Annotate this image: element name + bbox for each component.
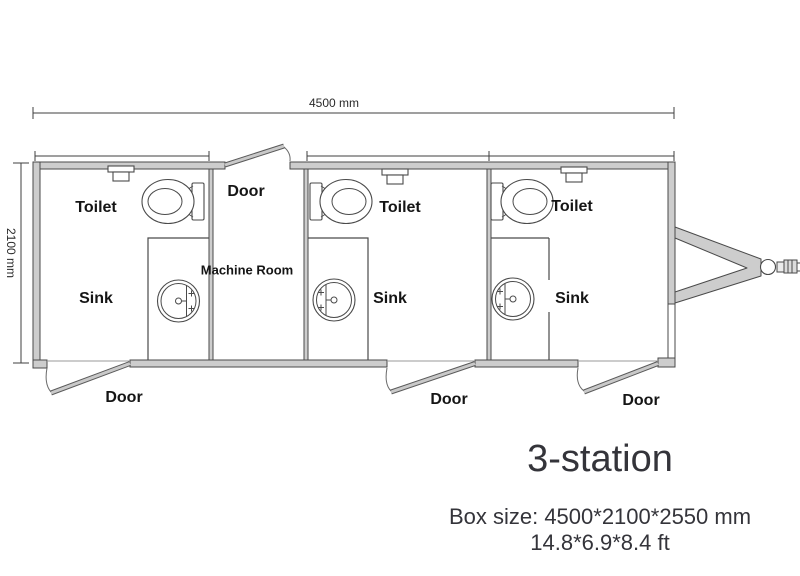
sink-icon xyxy=(313,279,355,321)
bottom-door-label-1: Door xyxy=(105,390,142,406)
floor-plan-page: 4500 mm 2100 mm Toilet Toilet Toilet Sin… xyxy=(0,0,800,576)
height-dimension-label: 2100 mm xyxy=(5,228,17,278)
vent-icon xyxy=(382,169,408,184)
width-dimension-label: 4500 mm xyxy=(309,97,359,109)
sink-label-3: Sink xyxy=(555,291,589,307)
machine-room-label: Machine Room xyxy=(201,264,293,277)
top-door-label: Door xyxy=(227,184,264,200)
box-size-mm: Box size: 4500*2100*2550 mm xyxy=(449,506,751,528)
sink-icon xyxy=(158,280,200,322)
bottom-door-label-3: Door xyxy=(622,393,659,409)
trailer-hitch-icon xyxy=(675,227,800,303)
fixtures xyxy=(108,166,587,322)
bottom-door-label-2: Door xyxy=(430,392,467,408)
vent-icon xyxy=(561,167,587,182)
dimension-lines xyxy=(13,107,674,363)
toilet-icon xyxy=(491,180,553,224)
toilet-label-1: Toilet xyxy=(75,200,116,216)
product-title: 3-station xyxy=(527,440,673,478)
toilet-label-2: Toilet xyxy=(379,200,420,216)
toilet-label-3: Toilet xyxy=(551,199,592,215)
sink-label-1: Sink xyxy=(79,291,113,307)
bottom-door-2 xyxy=(386,361,475,392)
top-door xyxy=(225,146,290,165)
box-size-ft: 14.8*6.9*8.4 ft xyxy=(530,532,669,554)
floor-plan-drawing xyxy=(0,0,800,576)
toilet-icon xyxy=(142,180,204,224)
sink-label-2: Sink xyxy=(373,291,407,307)
sink-icon xyxy=(492,278,534,320)
vent-icon xyxy=(108,166,134,181)
bottom-door-3 xyxy=(577,361,658,392)
toilet-icon xyxy=(310,180,372,224)
